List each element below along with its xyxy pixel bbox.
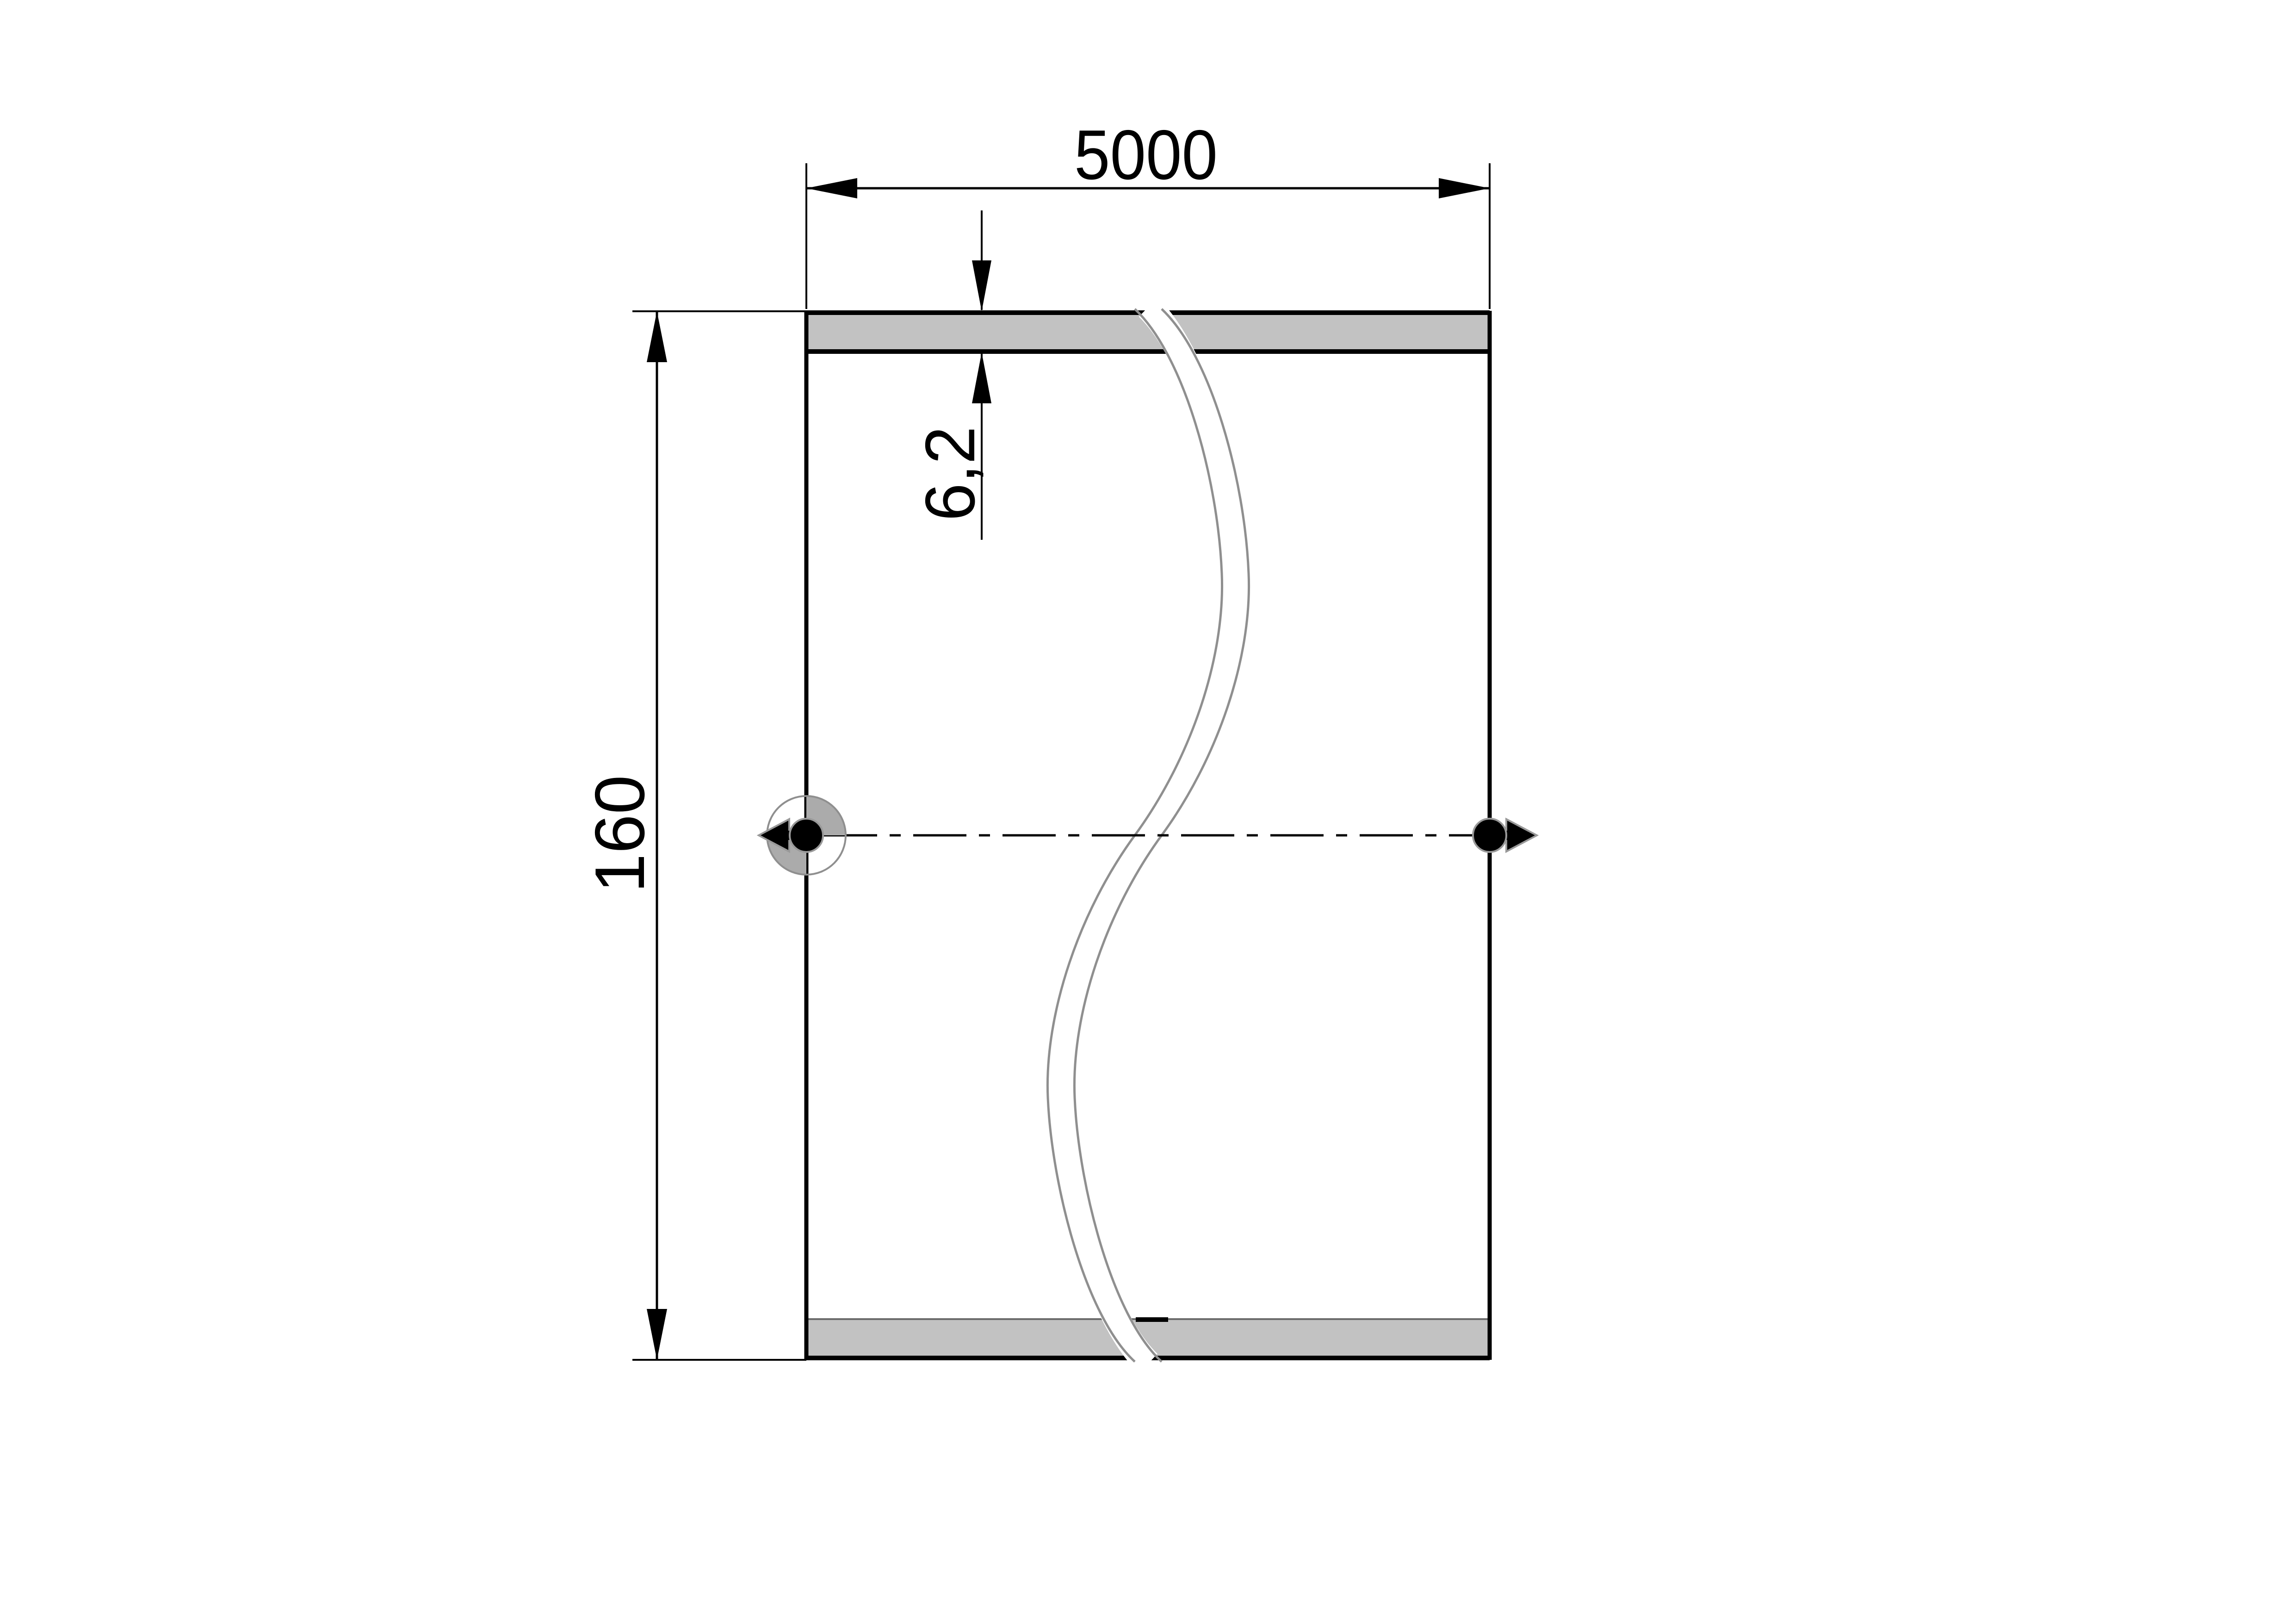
height-dimension-label: 160 [581, 775, 659, 893]
arrow-right-icon [1439, 178, 1490, 198]
drawing-canvas: 5000 160 6,2 [0, 0, 2296, 1623]
width-dimension-label: 5000 [1074, 116, 1218, 194]
thickness-dimension-label: 6,2 [911, 426, 990, 521]
arrow-down-icon [647, 1309, 667, 1360]
arrow-up-icon [647, 311, 667, 362]
center-dot-left [790, 819, 823, 852]
arrow-down-small-icon [972, 260, 991, 311]
arrow-left-icon [806, 178, 857, 198]
width-dimension: 5000 [806, 116, 1490, 309]
technical-drawing: 5000 160 6,2 [0, 0, 2296, 1623]
direction-marker-right [1473, 819, 1537, 852]
center-dot-right [1473, 819, 1506, 852]
